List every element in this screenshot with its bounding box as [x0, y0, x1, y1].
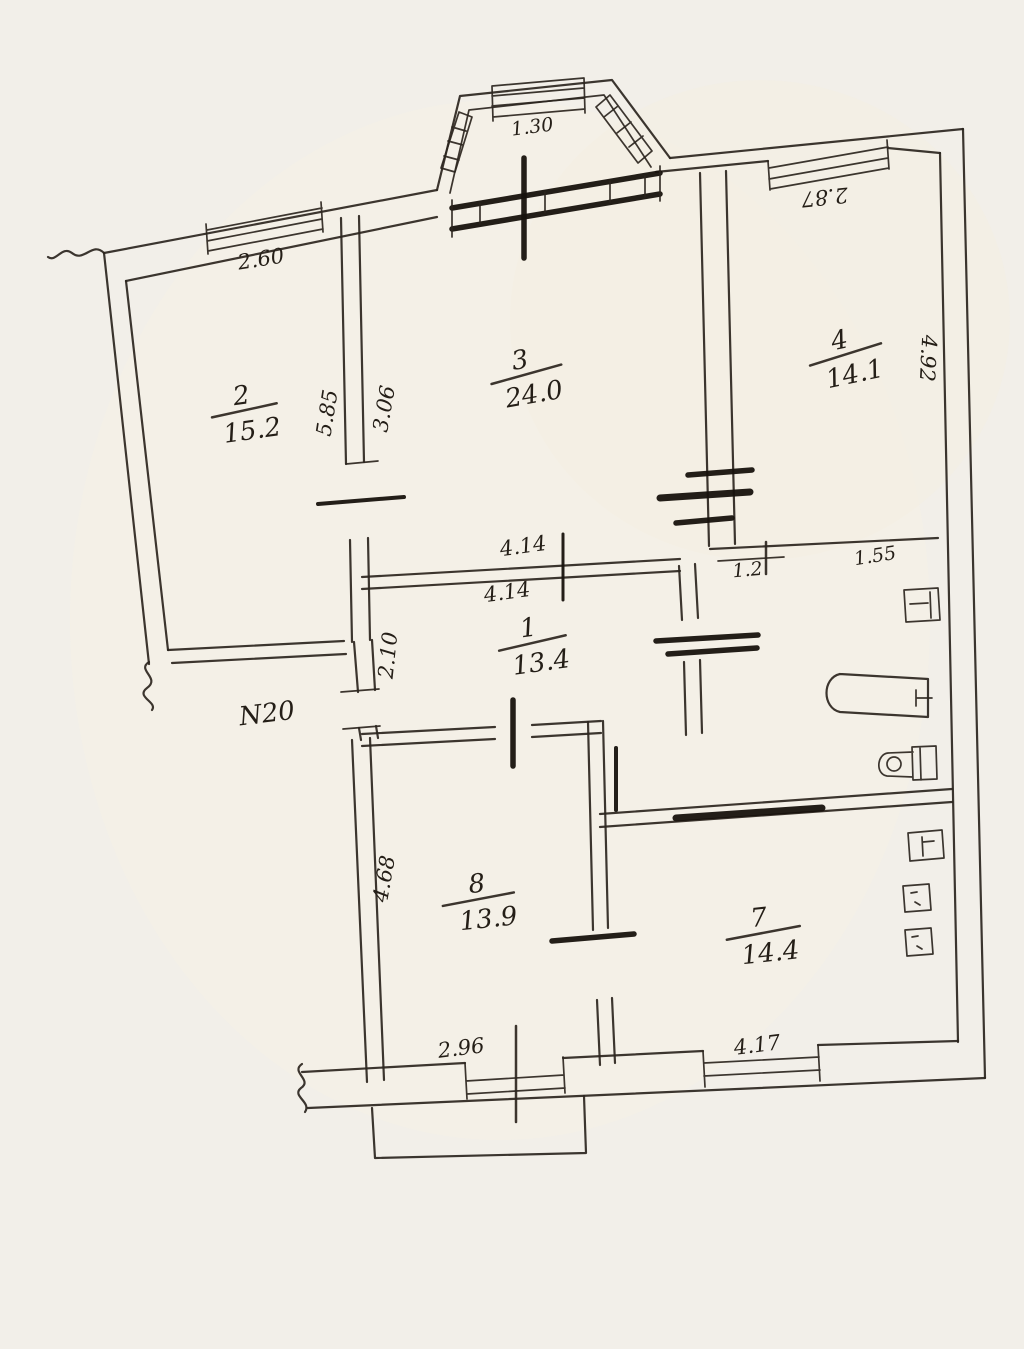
floor-plan-scan: 2 15.2 3 24.0 4 14.1 1 13.4 8 13.9 7 14.…	[0, 0, 1024, 1349]
room-8-area: 13.9	[458, 901, 519, 937]
dim-room4-height: 4.92	[915, 333, 941, 382]
dim-door-width: 1.2	[731, 558, 763, 583]
room-8-number: 8	[467, 868, 487, 900]
dim-hall-height: 2.10	[374, 631, 403, 681]
dim-window-top-right: 2.87	[800, 182, 851, 211]
floor-plan-drawing: 2 15.2 3 24.0 4 14.1 1 13.4 8 13.9 7 14.…	[0, 0, 1024, 1349]
room-7-area: 14.4	[740, 935, 801, 971]
